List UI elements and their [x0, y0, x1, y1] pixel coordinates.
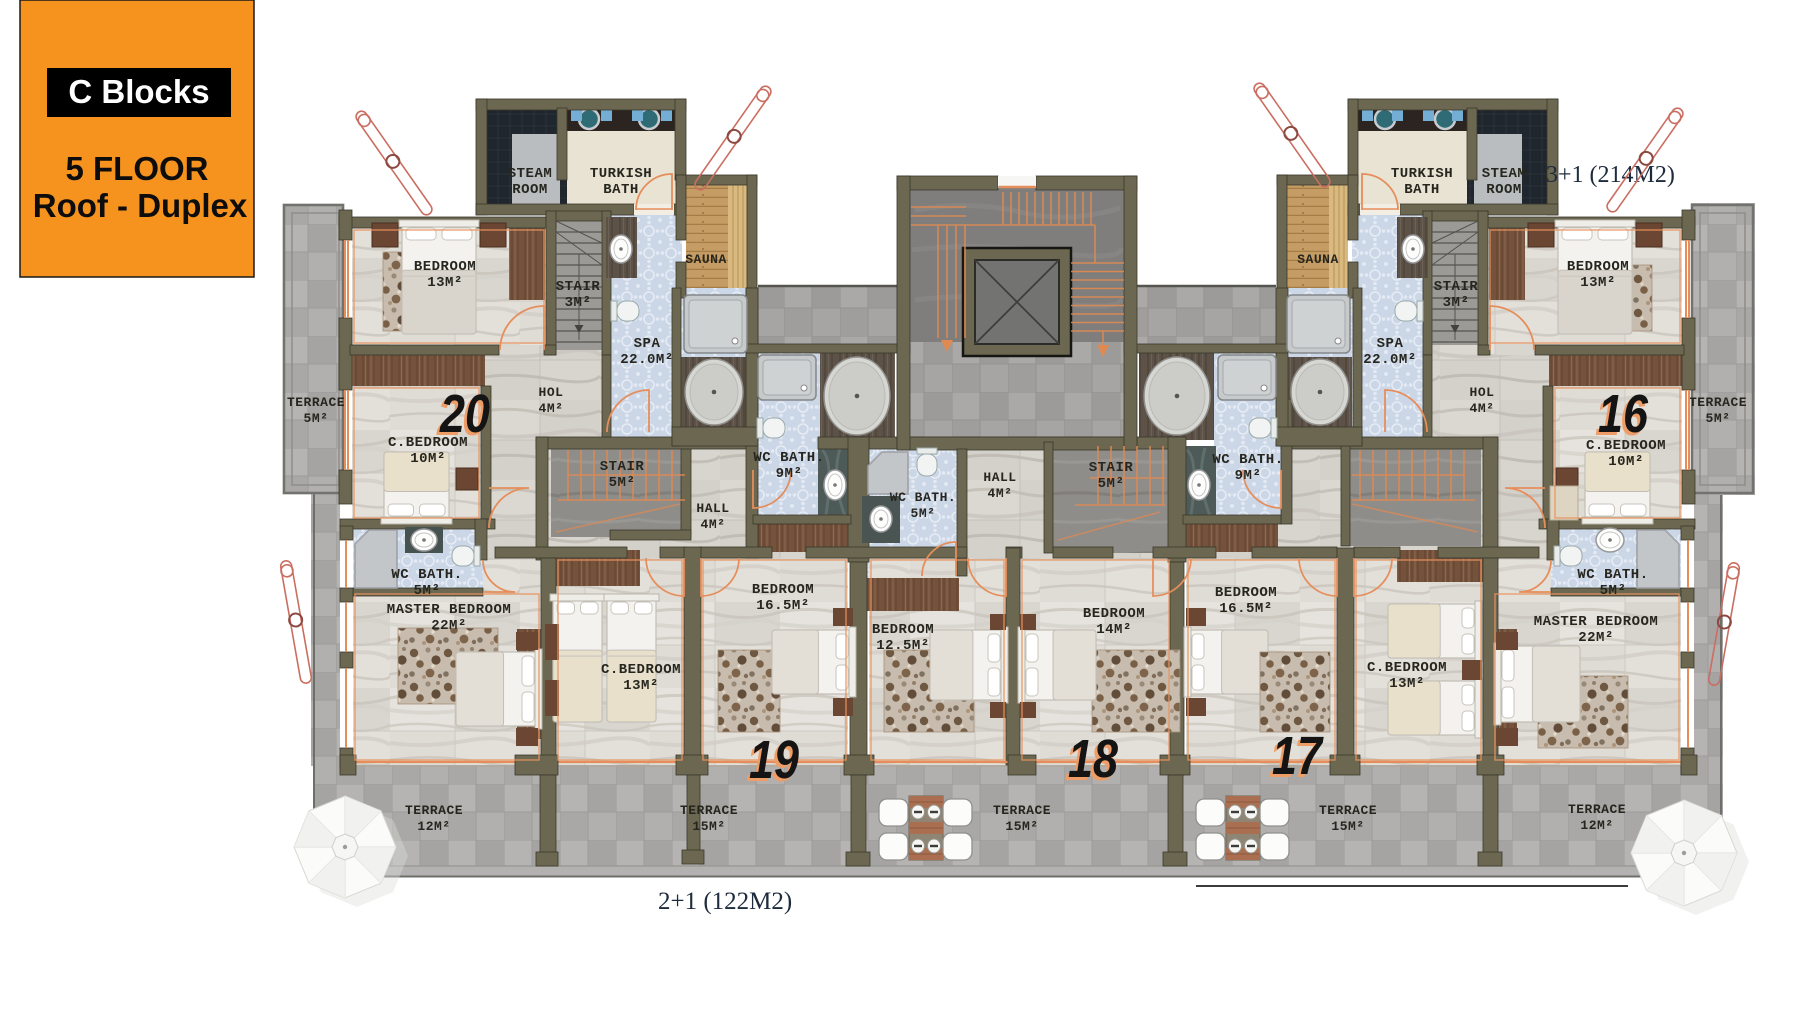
svg-text:TERRACE: TERRACE	[287, 395, 345, 410]
svg-text:BEDROOM: BEDROOM	[1215, 585, 1277, 601]
svg-text:SPA: SPA	[634, 336, 661, 352]
svg-text:4M²: 4M²	[988, 486, 1013, 501]
svg-text:12M²: 12M²	[1580, 818, 1613, 833]
svg-text:TURKISH: TURKISH	[1391, 166, 1453, 182]
svg-text:3+1 (214M2): 3+1 (214M2)	[1546, 162, 1675, 188]
svg-text:C.BEDROOM: C.BEDROOM	[1367, 660, 1447, 676]
svg-text:WC BATH.: WC BATH.	[391, 567, 462, 583]
svg-text:WC BATH.: WC BATH.	[890, 490, 956, 505]
svg-text:10M²: 10M²	[410, 451, 446, 467]
svg-text:SAUNA: SAUNA	[685, 252, 727, 267]
svg-text:HALL: HALL	[983, 470, 1016, 485]
svg-text:5M²: 5M²	[1600, 583, 1627, 599]
svg-text:BATH: BATH	[1404, 182, 1440, 198]
svg-text:SPA: SPA	[1377, 336, 1404, 352]
svg-text:22M²: 22M²	[431, 618, 467, 634]
svg-text:22M²: 22M²	[1578, 630, 1614, 646]
svg-text:TERRACE: TERRACE	[680, 803, 738, 818]
svg-text:14M²: 14M²	[1096, 622, 1132, 638]
svg-text:22.0M²: 22.0M²	[620, 352, 673, 368]
svg-text:3M²: 3M²	[1443, 295, 1470, 311]
svg-text:HOL: HOL	[539, 385, 564, 400]
svg-text:4M²: 4M²	[539, 401, 564, 416]
svg-text:22.0M²: 22.0M²	[1363, 352, 1416, 368]
svg-text:12M²: 12M²	[417, 819, 450, 834]
svg-text:5M²: 5M²	[304, 411, 329, 426]
svg-text:5M²: 5M²	[414, 583, 441, 599]
svg-text:Roof - Duplex: Roof - Duplex	[33, 187, 248, 224]
svg-text:18: 18	[1068, 729, 1118, 789]
svg-text:15M²: 15M²	[1331, 819, 1364, 834]
svg-text:SAUNA: SAUNA	[1297, 252, 1339, 267]
svg-text:HALL: HALL	[696, 501, 729, 516]
svg-text:MASTER BEDROOM: MASTER BEDROOM	[1534, 614, 1659, 630]
svg-text:19: 19	[749, 730, 799, 790]
svg-text:16.5M²: 16.5M²	[756, 598, 809, 614]
svg-text:12.5M²: 12.5M²	[876, 638, 929, 654]
svg-text:TERRACE: TERRACE	[993, 803, 1051, 818]
svg-text:TERRACE: TERRACE	[1689, 395, 1747, 410]
svg-text:5M²: 5M²	[1706, 411, 1731, 426]
svg-text:MASTER BEDROOM: MASTER BEDROOM	[387, 602, 512, 618]
svg-text:16: 16	[1598, 384, 1649, 444]
svg-text:15M²: 15M²	[692, 819, 725, 834]
svg-text:17: 17	[1272, 726, 1324, 786]
svg-text:STAIR: STAIR	[1434, 279, 1479, 295]
svg-text:TERRACE: TERRACE	[405, 803, 463, 818]
svg-text:5M²: 5M²	[911, 506, 936, 521]
svg-text:13M²: 13M²	[1580, 275, 1616, 291]
svg-text:2+1 (122M2): 2+1 (122M2)	[658, 888, 792, 915]
svg-text:STAIR: STAIR	[1089, 460, 1134, 476]
svg-text:BEDROOM: BEDROOM	[414, 259, 476, 275]
svg-text:3M²: 3M²	[565, 295, 592, 311]
svg-text:STAIR: STAIR	[600, 459, 645, 475]
svg-text:TURKISH: TURKISH	[590, 166, 652, 182]
svg-text:STAIR: STAIR	[556, 279, 601, 295]
svg-text:15M²: 15M²	[1005, 819, 1038, 834]
svg-text:5M²: 5M²	[609, 475, 636, 491]
svg-text:STEAM: STEAM	[508, 166, 553, 182]
svg-text:9M²: 9M²	[1235, 468, 1262, 484]
svg-text:13M²: 13M²	[623, 678, 659, 694]
svg-text:WC BATH.: WC BATH.	[1577, 567, 1648, 583]
svg-text:16.5M²: 16.5M²	[1219, 601, 1272, 617]
svg-text:BEDROOM: BEDROOM	[1083, 606, 1145, 622]
svg-text:BATH: BATH	[603, 182, 639, 198]
svg-text:HOL: HOL	[1470, 385, 1495, 400]
svg-text:20: 20	[439, 384, 490, 444]
svg-text:ROOM: ROOM	[1486, 182, 1522, 198]
svg-text:ROOM: ROOM	[512, 182, 548, 198]
svg-text:TERRACE: TERRACE	[1568, 802, 1626, 817]
svg-text:5 FLOOR: 5 FLOOR	[65, 150, 208, 187]
svg-text:13M²: 13M²	[427, 275, 463, 291]
svg-text:5M²: 5M²	[1098, 476, 1125, 492]
svg-text:STEAM: STEAM	[1482, 166, 1527, 182]
svg-text:BEDROOM: BEDROOM	[1567, 259, 1629, 275]
svg-text:9M²: 9M²	[776, 466, 803, 482]
svg-text:13M²: 13M²	[1389, 676, 1425, 692]
svg-text:10M²: 10M²	[1608, 454, 1644, 470]
svg-text:BEDROOM: BEDROOM	[872, 622, 934, 638]
svg-text:C.BEDROOM: C.BEDROOM	[601, 662, 681, 678]
svg-text:4M²: 4M²	[1470, 401, 1495, 416]
svg-text:TERRACE: TERRACE	[1319, 803, 1377, 818]
svg-text:4M²: 4M²	[701, 517, 726, 532]
svg-text:WC BATH.: WC BATH.	[753, 450, 824, 466]
svg-text:WC BATH.: WC BATH.	[1212, 452, 1283, 468]
svg-text:BEDROOM: BEDROOM	[752, 582, 814, 598]
svg-text:C Blocks: C Blocks	[68, 73, 209, 110]
